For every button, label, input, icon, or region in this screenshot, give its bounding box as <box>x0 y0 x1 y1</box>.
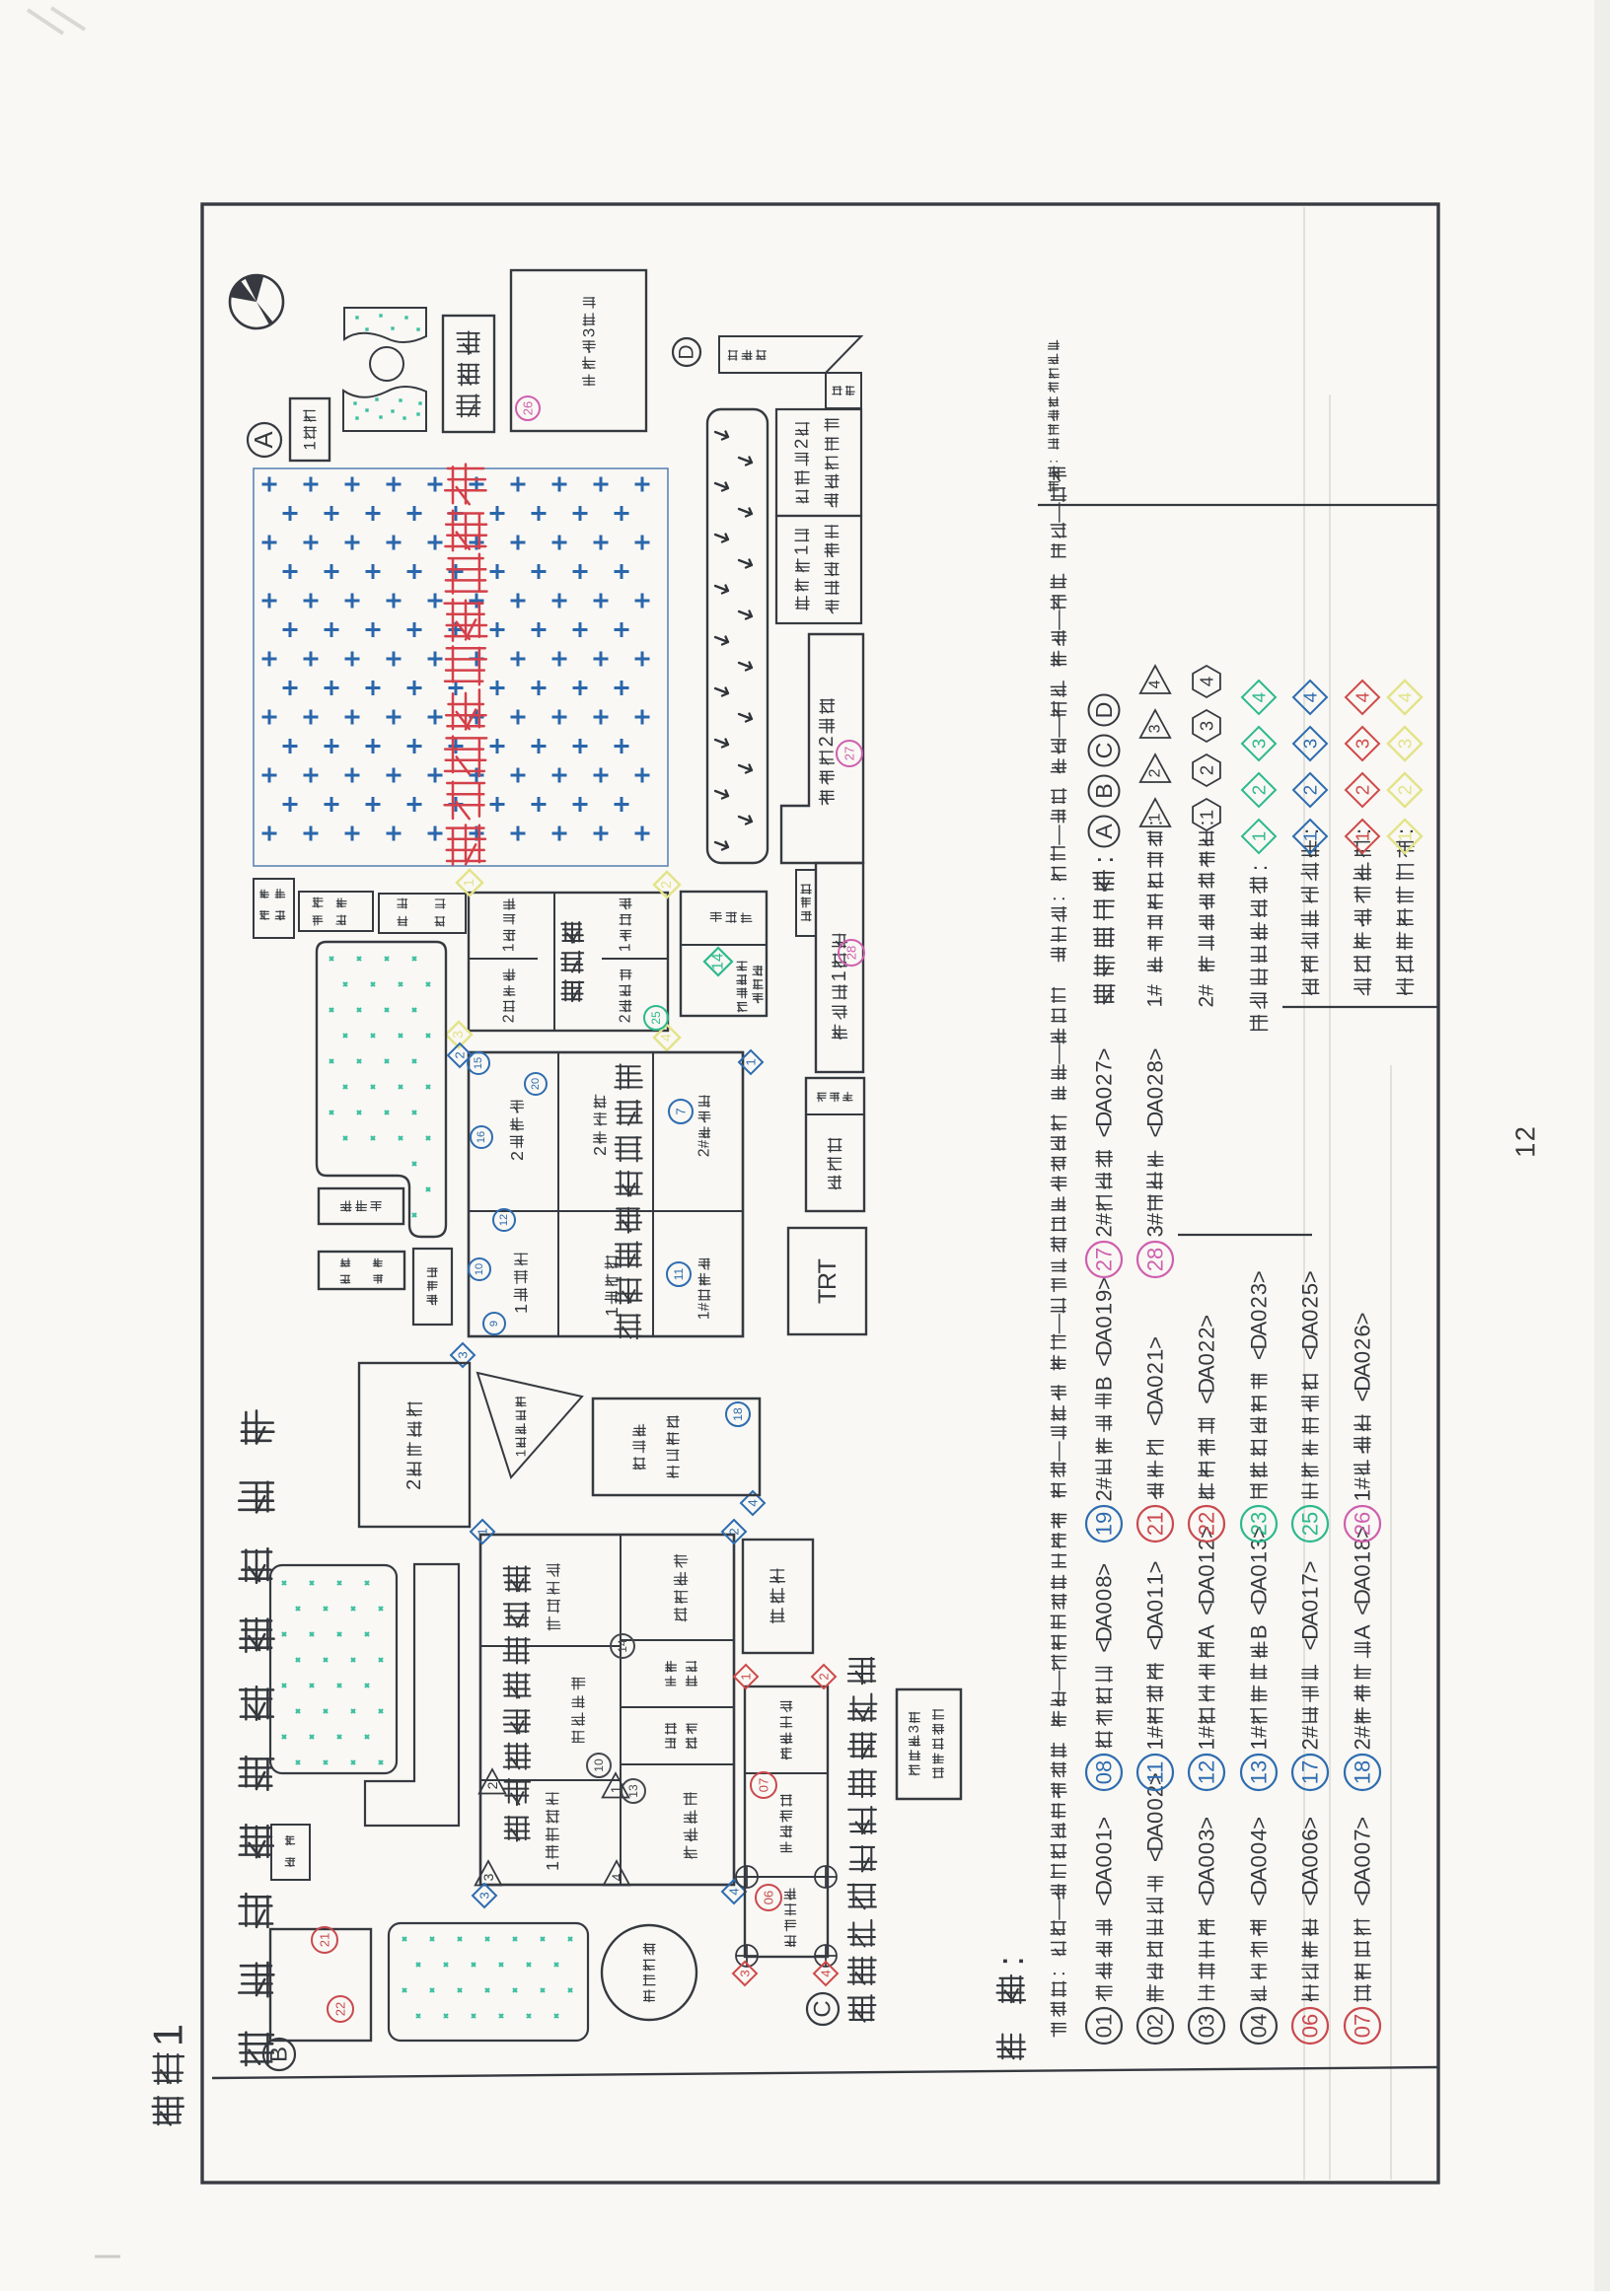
svg-text:A: A <box>1298 1867 1323 1882</box>
svg-text:1: 1 <box>1351 1489 1375 1501</box>
svg-text:0: 0 <box>1298 1600 1323 1612</box>
svg-text:A: A <box>1247 1867 1272 1882</box>
svg-text:A: A <box>1195 1365 1219 1380</box>
svg-text:1: 1 <box>1143 1738 1168 1750</box>
svg-text:A: A <box>1298 1321 1323 1335</box>
svg-text:#: # <box>1351 1725 1375 1738</box>
svg-text:0: 0 <box>1247 1564 1272 1576</box>
svg-text:18: 18 <box>1351 1760 1375 1784</box>
svg-text:>: > <box>1092 1817 1117 1830</box>
svg-text:>: > <box>1092 1277 1117 1290</box>
svg-text:C: C <box>810 2000 837 2017</box>
svg-text:1: 1 <box>1510 1143 1541 1158</box>
svg-text:25: 25 <box>1298 1512 1323 1536</box>
svg-text:0: 0 <box>1351 1564 1375 1576</box>
svg-text:3: 3 <box>1300 739 1321 749</box>
svg-text:2: 2 <box>1351 1738 1375 1750</box>
svg-text:6: 6 <box>1351 1325 1375 1336</box>
svg-text:0: 0 <box>1298 1855 1323 1867</box>
svg-text:4: 4 <box>746 1499 761 1506</box>
svg-text:06: 06 <box>1298 2014 1323 2038</box>
svg-text:1: 1 <box>1092 1829 1117 1840</box>
svg-text:2: 2 <box>1300 785 1321 795</box>
svg-text:A: A <box>1143 1099 1168 1113</box>
svg-text:2: 2 <box>1143 1362 1168 1374</box>
svg-text:1: 1 <box>1197 810 1217 820</box>
svg-text:1: 1 <box>1147 813 1164 822</box>
svg-text:#: # <box>1196 984 1218 996</box>
svg-text:15: 15 <box>473 1057 484 1069</box>
svg-text:11: 11 <box>672 1267 686 1280</box>
svg-text:3: 3 <box>1195 1829 1219 1840</box>
svg-text:1: 1 <box>1195 1738 1219 1750</box>
svg-text:4: 4 <box>1353 692 1373 702</box>
svg-text:—: — <box>1048 610 1069 630</box>
svg-text:4: 4 <box>659 1034 675 1041</box>
svg-text:2: 2 <box>816 736 838 747</box>
svg-text:9: 9 <box>1092 1290 1117 1302</box>
svg-text:A: A <box>251 431 278 448</box>
svg-text:06: 06 <box>762 1891 776 1904</box>
svg-text:A: A <box>1351 1624 1375 1639</box>
svg-text:5: 5 <box>1298 1283 1323 1295</box>
svg-text:1: 1 <box>1351 1551 1375 1563</box>
svg-text:2: 2 <box>1298 1738 1323 1750</box>
svg-text:12: 12 <box>1195 1760 1219 1784</box>
svg-text:>: > <box>1298 1817 1323 1830</box>
svg-text:A: A <box>1092 1867 1117 1882</box>
svg-text:03: 03 <box>1195 2014 1219 2038</box>
svg-text:0: 0 <box>1247 1842 1272 1854</box>
svg-text:#: # <box>1143 1725 1168 1738</box>
svg-text:T: T <box>814 1258 842 1273</box>
svg-text:3: 3 <box>1395 739 1416 749</box>
svg-text:1: 1 <box>511 1304 531 1314</box>
svg-text:#: # <box>1092 1212 1117 1225</box>
svg-text:4: 4 <box>609 1873 624 1881</box>
svg-text:2: 2 <box>507 1151 527 1161</box>
svg-text:2: 2 <box>484 1781 500 1789</box>
svg-text:1: 1 <box>744 1058 759 1065</box>
svg-text:0: 0 <box>1143 1375 1168 1387</box>
svg-text:16: 16 <box>476 1131 487 1143</box>
svg-text:>: > <box>1351 1313 1375 1326</box>
svg-text:08: 08 <box>1092 1760 1117 1784</box>
svg-text:C: C <box>1091 743 1117 759</box>
svg-text:2: 2 <box>1147 768 1164 777</box>
svg-text:—: — <box>1048 1670 1069 1690</box>
svg-text:1: 1 <box>739 1673 754 1680</box>
svg-text:1: 1 <box>1143 1349 1168 1361</box>
svg-text:4: 4 <box>1247 1829 1272 1840</box>
svg-text::: : <box>1048 896 1069 901</box>
svg-text:1: 1 <box>829 970 850 981</box>
svg-text:1: 1 <box>1300 831 1321 841</box>
svg-text:2: 2 <box>1195 1340 1219 1352</box>
svg-text:1: 1 <box>1249 831 1270 841</box>
svg-text:25: 25 <box>649 1011 663 1025</box>
svg-text:R: R <box>814 1272 842 1290</box>
svg-text:2: 2 <box>1092 1074 1117 1086</box>
svg-text:3: 3 <box>1353 739 1373 749</box>
svg-text:2: 2 <box>403 1479 425 1490</box>
svg-text:0: 0 <box>1351 1855 1375 1867</box>
svg-text:>: > <box>1092 1048 1117 1061</box>
svg-text:11: 11 <box>1143 1761 1168 1784</box>
svg-text:A: A <box>1092 1099 1117 1113</box>
svg-text:2: 2 <box>1092 1225 1117 1237</box>
svg-text:#: # <box>1195 1725 1219 1738</box>
svg-text:4: 4 <box>1300 692 1321 702</box>
svg-text:—: — <box>1048 717 1069 738</box>
svg-text:22: 22 <box>1195 1512 1219 1536</box>
svg-text:28: 28 <box>844 946 859 960</box>
svg-text:1: 1 <box>543 1861 562 1871</box>
svg-text:>: > <box>1247 1817 1272 1830</box>
svg-text:2: 2 <box>501 1014 518 1023</box>
svg-text:#: # <box>1351 1476 1375 1489</box>
svg-text:A: A <box>1143 1612 1168 1626</box>
svg-text::: : <box>1246 865 1272 871</box>
svg-text:0: 0 <box>1092 1855 1117 1867</box>
svg-text:0: 0 <box>1195 1353 1219 1365</box>
svg-text::: : <box>990 1956 1032 1967</box>
svg-text:2: 2 <box>1247 1296 1272 1308</box>
svg-text:2: 2 <box>1143 1074 1168 1086</box>
svg-text:19: 19 <box>1092 1512 1117 1536</box>
svg-text:1: 1 <box>1395 831 1416 841</box>
svg-text:#: # <box>1247 1725 1272 1738</box>
svg-text:1: 1 <box>1247 1551 1272 1563</box>
svg-text:2: 2 <box>1195 1327 1219 1338</box>
svg-text:1: 1 <box>1195 1551 1219 1563</box>
svg-text:0: 0 <box>1143 1798 1168 1810</box>
svg-text:3: 3 <box>907 1725 922 1733</box>
svg-text::: : <box>1088 856 1120 864</box>
svg-text:3: 3 <box>1197 721 1217 731</box>
svg-text:A: A <box>1143 1387 1168 1401</box>
svg-text:27: 27 <box>1092 1248 1117 1271</box>
svg-text:—: — <box>1048 1043 1069 1064</box>
svg-text:2: 2 <box>618 1014 634 1023</box>
svg-text:1: 1 <box>301 441 320 450</box>
svg-text:28: 28 <box>1143 1248 1168 1271</box>
svg-text:3: 3 <box>1249 739 1270 749</box>
svg-text:0: 0 <box>1195 1842 1219 1854</box>
svg-text:>: > <box>1298 1270 1323 1283</box>
svg-text:1: 1 <box>145 2024 191 2046</box>
svg-text:2: 2 <box>1353 785 1373 795</box>
svg-text:6: 6 <box>1298 1829 1323 1840</box>
svg-text:1: 1 <box>1144 996 1167 1008</box>
svg-text:4: 4 <box>819 1970 834 1976</box>
svg-text:18: 18 <box>731 1407 745 1421</box>
svg-text:4: 4 <box>727 1888 742 1895</box>
svg-text:17: 17 <box>1298 1760 1323 1784</box>
svg-text:A: A <box>1351 1576 1375 1591</box>
svg-text:0: 0 <box>1143 1087 1168 1099</box>
svg-text:2: 2 <box>1351 1338 1375 1350</box>
svg-text:0: 0 <box>1143 1600 1168 1612</box>
svg-text:#: # <box>1144 984 1167 996</box>
svg-text:D: D <box>1091 702 1117 719</box>
svg-text:3: 3 <box>738 1970 753 1976</box>
svg-text:0: 0 <box>1195 1855 1219 1867</box>
svg-text:A: A <box>1351 1363 1375 1378</box>
svg-text:1: 1 <box>608 1785 623 1793</box>
svg-text:10: 10 <box>474 1263 485 1275</box>
svg-text:3: 3 <box>451 1031 467 1039</box>
svg-text:4: 4 <box>1197 677 1217 686</box>
svg-text:20: 20 <box>530 1078 542 1090</box>
svg-text:2: 2 <box>1298 1296 1323 1308</box>
svg-text:07: 07 <box>757 1778 771 1792</box>
svg-text:7: 7 <box>1298 1573 1323 1585</box>
svg-text:0: 0 <box>1351 1351 1375 1363</box>
svg-text:B: B <box>1247 1624 1272 1639</box>
svg-text:1: 1 <box>476 1528 490 1535</box>
svg-text:3: 3 <box>1143 1225 1168 1237</box>
svg-text:0: 0 <box>1298 1842 1323 1854</box>
svg-text:14: 14 <box>710 953 727 970</box>
svg-text:A: A <box>1091 824 1117 839</box>
svg-text:>: > <box>1092 1563 1117 1576</box>
svg-text:>: > <box>1143 1561 1168 1574</box>
svg-text::: : <box>1046 460 1061 464</box>
svg-text:A: A <box>1351 1867 1375 1882</box>
svg-text:01: 01 <box>1092 2014 1117 2038</box>
svg-text:22: 22 <box>333 2002 348 2016</box>
svg-text:7: 7 <box>674 1108 689 1114</box>
svg-text:27: 27 <box>842 747 857 760</box>
svg-text:0: 0 <box>1247 1310 1272 1322</box>
svg-text:>: > <box>1298 1561 1323 1574</box>
svg-text:26: 26 <box>1351 1512 1375 1536</box>
svg-text:13: 13 <box>1247 1760 1272 1784</box>
svg-text:7: 7 <box>1092 1060 1117 1072</box>
svg-text:3: 3 <box>477 1892 492 1899</box>
svg-text:10: 10 <box>592 1758 606 1772</box>
svg-text:0: 0 <box>1092 1087 1117 1099</box>
svg-text:3: 3 <box>1247 1283 1272 1295</box>
svg-text:1: 1 <box>1092 1303 1117 1315</box>
svg-text:2: 2 <box>696 1148 713 1157</box>
svg-text:#: # <box>1143 1212 1168 1225</box>
svg-text:1: 1 <box>1143 1587 1168 1599</box>
svg-text:9: 9 <box>488 1321 500 1327</box>
svg-text:>: > <box>1195 1315 1219 1327</box>
svg-text:12: 12 <box>498 1214 510 1226</box>
svg-text:0: 0 <box>1092 1602 1117 1614</box>
svg-text:1: 1 <box>1298 1587 1323 1599</box>
svg-text:>: > <box>1143 1336 1168 1349</box>
svg-text:A: A <box>1092 1614 1117 1628</box>
svg-text:A: A <box>1195 1867 1219 1882</box>
svg-text:2: 2 <box>590 1146 610 1156</box>
svg-text:02: 02 <box>1143 2014 1168 2038</box>
svg-text:1: 1 <box>501 943 518 952</box>
svg-text:26: 26 <box>521 401 536 415</box>
svg-text:21: 21 <box>318 1933 332 1947</box>
svg-text:—: — <box>1048 1313 1069 1333</box>
svg-text:2: 2 <box>1510 1126 1541 1141</box>
svg-text:A: A <box>1195 1576 1219 1591</box>
svg-text:2: 2 <box>817 1673 832 1680</box>
svg-text:—: — <box>1048 1900 1069 1920</box>
svg-text:—: — <box>1048 1441 1069 1462</box>
svg-text:2: 2 <box>659 881 675 889</box>
svg-text:>: > <box>1351 1817 1375 1830</box>
svg-text:D: D <box>676 344 698 359</box>
svg-text:2: 2 <box>1249 785 1270 795</box>
svg-text:>: > <box>1247 1270 1272 1283</box>
svg-text:2: 2 <box>1196 996 1218 1008</box>
svg-text:0: 0 <box>1351 1842 1375 1854</box>
svg-text:#: # <box>696 1139 713 1148</box>
svg-text:2: 2 <box>1197 765 1217 775</box>
svg-text:#: # <box>1298 1725 1323 1738</box>
svg-text:8: 8 <box>1143 1060 1168 1072</box>
svg-text:1: 1 <box>1143 1573 1168 1585</box>
svg-text:1: 1 <box>514 1450 529 1458</box>
svg-text:0: 0 <box>1247 1855 1272 1867</box>
svg-text:0: 0 <box>1092 1842 1117 1854</box>
svg-text:21: 21 <box>1143 1512 1168 1536</box>
svg-text:B: B <box>266 2046 293 2062</box>
svg-text:A: A <box>1247 1321 1272 1335</box>
svg-text:0: 0 <box>1092 1589 1117 1601</box>
svg-text:04: 04 <box>1247 2014 1272 2038</box>
svg-text:4: 4 <box>1395 692 1416 702</box>
svg-text:8: 8 <box>1092 1575 1117 1587</box>
svg-text:0: 0 <box>1298 1310 1323 1322</box>
svg-text:23: 23 <box>1247 1512 1272 1536</box>
svg-text:2: 2 <box>1395 785 1416 795</box>
svg-text:1: 1 <box>1353 831 1373 841</box>
svg-text:3: 3 <box>480 1873 496 1881</box>
svg-text:A: A <box>1247 1576 1272 1591</box>
svg-text:2: 2 <box>792 439 813 450</box>
svg-text:3: 3 <box>580 328 599 337</box>
svg-text:0: 0 <box>1143 1812 1168 1824</box>
svg-text:4: 4 <box>1249 692 1270 702</box>
svg-text:14: 14 <box>616 1639 629 1653</box>
svg-text:1: 1 <box>618 943 634 952</box>
svg-text:4: 4 <box>1147 680 1164 688</box>
svg-text:A: A <box>1298 1612 1323 1626</box>
svg-text:#: # <box>1092 1476 1117 1489</box>
svg-text:B: B <box>1091 783 1117 798</box>
svg-text:#: # <box>696 1302 713 1311</box>
svg-text:0: 0 <box>1195 1564 1219 1576</box>
svg-text:A: A <box>1143 1823 1168 1837</box>
svg-text:A: A <box>1195 1624 1219 1639</box>
svg-text:07: 07 <box>1351 2014 1375 2038</box>
svg-text:>: > <box>1195 1817 1219 1830</box>
svg-text:2: 2 <box>453 1051 468 1058</box>
svg-text:0: 0 <box>1092 1316 1117 1327</box>
svg-text:3: 3 <box>1147 724 1164 733</box>
svg-text:2: 2 <box>1092 1489 1117 1501</box>
svg-text:1: 1 <box>462 879 477 887</box>
svg-text:>: > <box>1143 1048 1168 1061</box>
svg-text:—: — <box>1048 825 1069 845</box>
svg-text:B: B <box>1092 1376 1117 1391</box>
svg-text:7: 7 <box>1351 1829 1375 1840</box>
svg-text:2: 2 <box>727 1528 742 1535</box>
svg-text:1: 1 <box>1247 1738 1272 1750</box>
svg-text:1: 1 <box>696 1311 713 1320</box>
svg-text:A: A <box>1092 1327 1117 1342</box>
svg-text::: : <box>1048 1971 1069 1976</box>
svg-text:3: 3 <box>456 1351 471 1358</box>
svg-text:1: 1 <box>792 545 813 556</box>
